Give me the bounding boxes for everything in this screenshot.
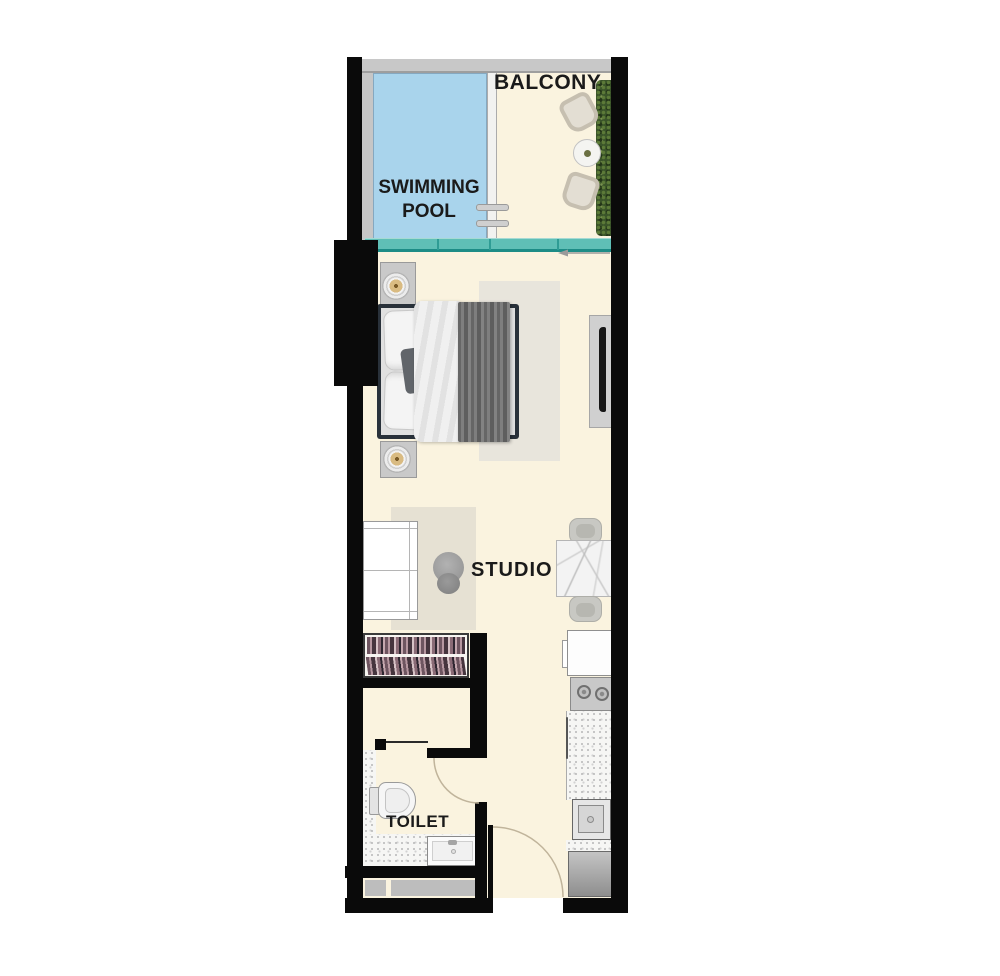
toilet-door-arc bbox=[434, 758, 479, 803]
door-swing-arcs bbox=[0, 0, 1000, 976]
studio-label: STUDIO bbox=[471, 559, 553, 582]
sliding-door-arrow bbox=[558, 250, 568, 257]
floor-plan: BALCONY SWIMMING POOL STUDIO TOILET bbox=[0, 0, 1000, 976]
balcony-label: BALCONY bbox=[494, 71, 601, 95]
entry-door-arc bbox=[493, 827, 563, 897]
toilet-label: TOILET bbox=[386, 812, 449, 832]
swimming-pool-label: SWIMMING POOL bbox=[368, 176, 490, 224]
swimming-pool-label-line2: POOL bbox=[368, 200, 490, 224]
swimming-pool-label-line1: SWIMMING bbox=[368, 176, 490, 200]
